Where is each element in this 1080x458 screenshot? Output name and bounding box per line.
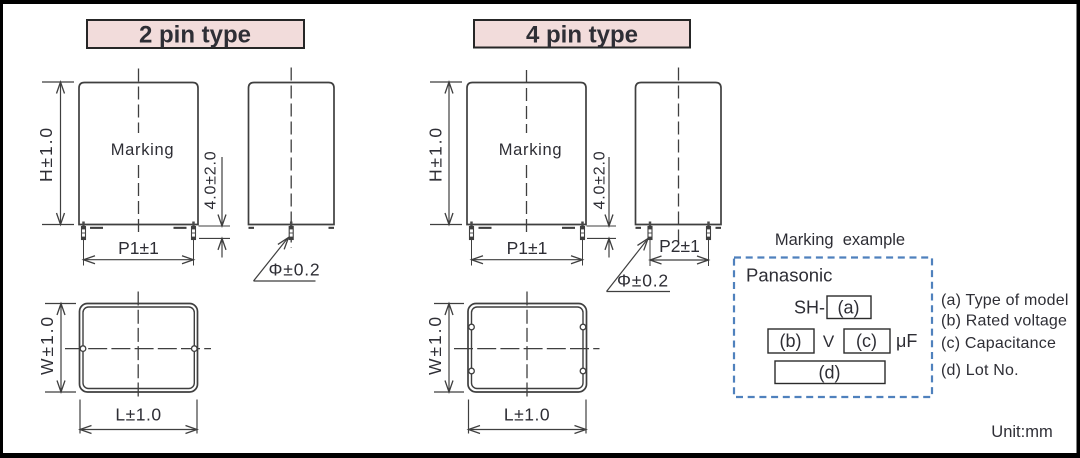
svg-text:Marking: Marking xyxy=(499,141,563,159)
svg-text:Marking: Marking xyxy=(111,141,175,159)
svg-text:4.0±2.0: 4.0±2.0 xyxy=(592,151,609,210)
svg-text:W±1.0: W±1.0 xyxy=(37,315,57,375)
svg-text:(c) Capacitance: (c) Capacitance xyxy=(941,335,1056,352)
svg-text:P2±1: P2±1 xyxy=(659,236,700,256)
svg-text:4 pin type: 4 pin type xyxy=(526,22,638,49)
svg-text:(a): (a) xyxy=(838,298,860,318)
svg-text:W±1.0: W±1.0 xyxy=(425,315,445,375)
svg-text:(b) Rated voltage: (b) Rated voltage xyxy=(941,313,1067,330)
svg-text:L±1.0: L±1.0 xyxy=(115,405,161,425)
svg-text:V: V xyxy=(823,332,835,351)
svg-text:SH-: SH- xyxy=(794,298,825,318)
svg-text:4.0±2.0: 4.0±2.0 xyxy=(203,151,220,210)
svg-text:Φ±0.2: Φ±0.2 xyxy=(617,271,669,291)
svg-text:2 pin type: 2 pin type xyxy=(139,22,251,49)
svg-text:Unit:mm: Unit:mm xyxy=(991,423,1052,441)
svg-text:(a) Type of model: (a) Type of model xyxy=(941,292,1069,309)
svg-text:(c): (c) xyxy=(856,331,877,351)
svg-text:μF: μF xyxy=(896,331,917,351)
svg-text:Panasonic: Panasonic xyxy=(746,265,832,286)
svg-text:(d) Lot No.: (d) Lot No. xyxy=(941,362,1019,379)
svg-text:H±1.0: H±1.0 xyxy=(36,126,56,182)
svg-text:(d): (d) xyxy=(819,363,841,383)
svg-text:L±1.0: L±1.0 xyxy=(504,405,550,425)
svg-text:Φ±0.2: Φ±0.2 xyxy=(269,260,321,280)
svg-text:Marking example: Marking example xyxy=(775,231,905,249)
svg-text:H±1.0: H±1.0 xyxy=(426,126,446,182)
svg-text:P1±1: P1±1 xyxy=(118,238,159,258)
svg-text:(b): (b) xyxy=(780,331,802,351)
svg-text:P1±1: P1±1 xyxy=(507,238,548,258)
